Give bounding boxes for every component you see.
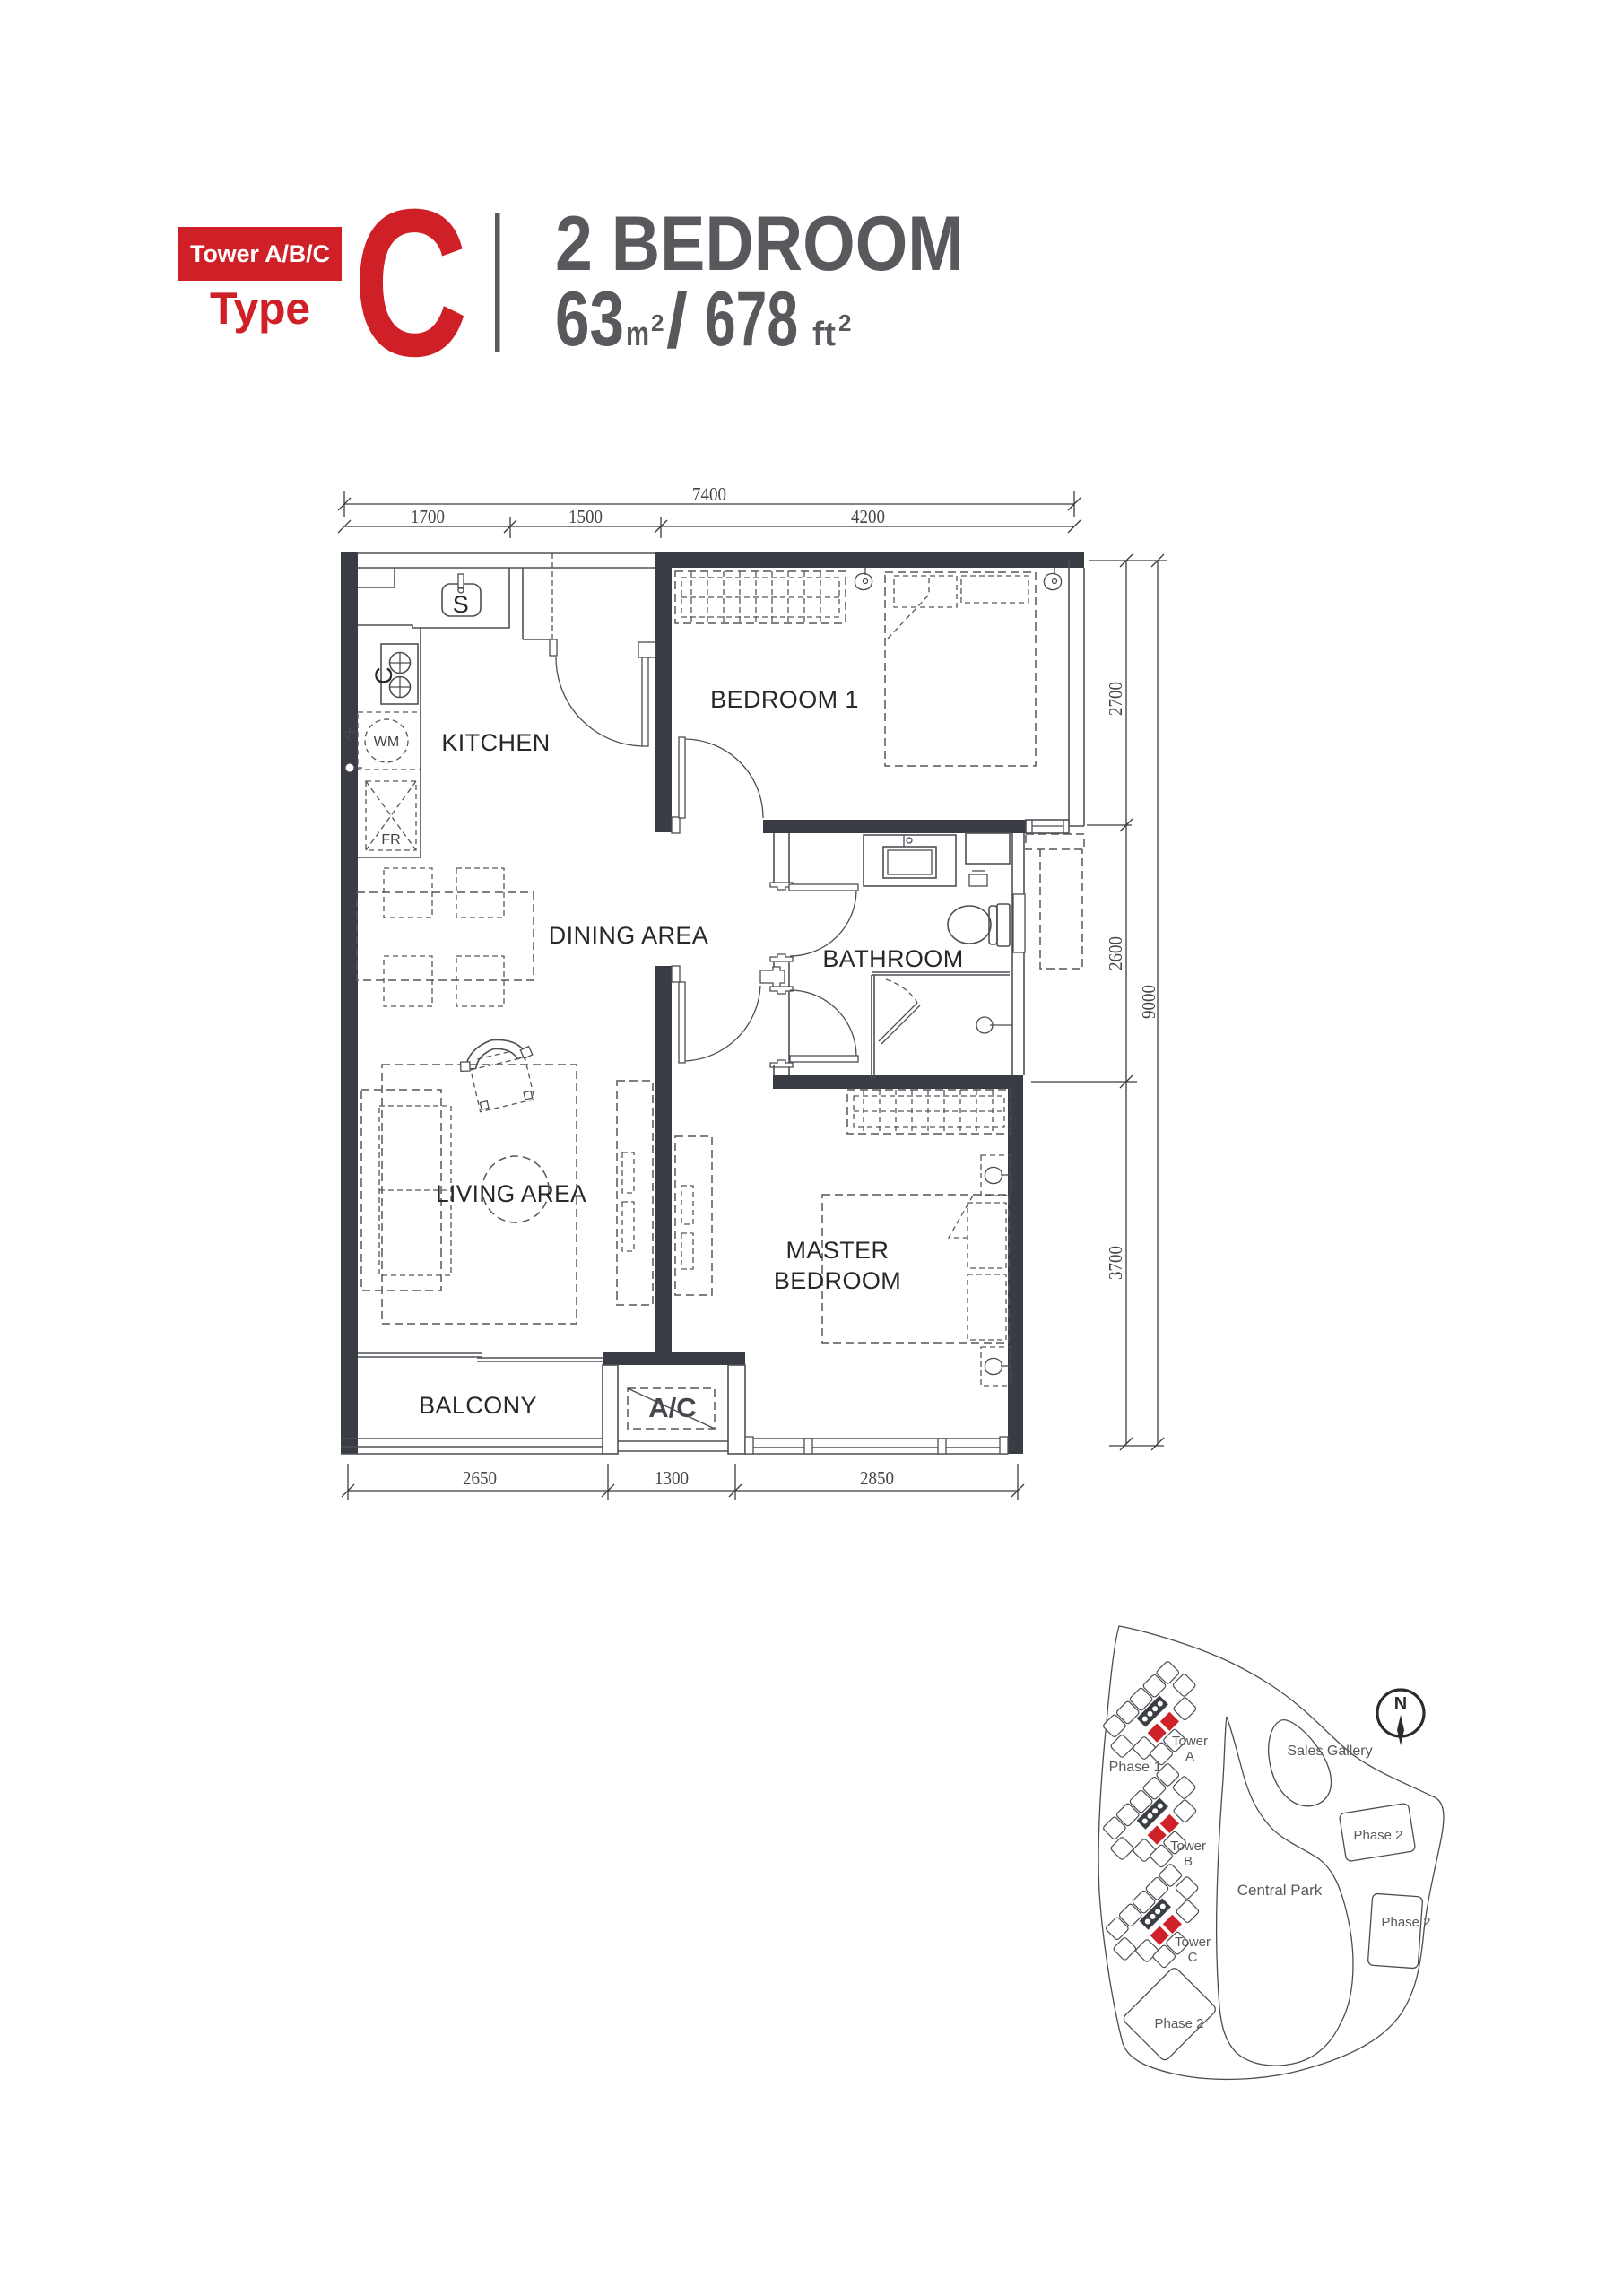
- svg-text:2: 2: [651, 309, 664, 336]
- svg-text:S: S: [453, 591, 469, 618]
- svg-text:BATHROOM: BATHROOM: [822, 945, 963, 972]
- svg-text:FR: FR: [381, 832, 400, 848]
- svg-text:DINING AREA: DINING AREA: [549, 922, 708, 949]
- svg-text:2 BEDROOM: 2 BEDROOM: [555, 201, 964, 287]
- svg-text:Type: Type: [210, 283, 310, 334]
- svg-text:1700: 1700: [411, 506, 445, 527]
- svg-text:m: m: [626, 316, 649, 353]
- svg-text:KITCHEN: KITCHEN: [441, 729, 550, 756]
- svg-text:Phase 2: Phase 2: [1154, 2016, 1203, 2031]
- svg-text:BALCONY: BALCONY: [419, 1392, 537, 1419]
- svg-text:C: C: [1188, 1950, 1198, 1965]
- svg-text:LIVING AREA: LIVING AREA: [436, 1180, 586, 1207]
- svg-text:N: N: [1394, 1694, 1407, 1714]
- svg-text:2700: 2700: [1105, 682, 1126, 716]
- svg-text:9000: 9000: [1138, 985, 1159, 1019]
- svg-text:BEDROOM: BEDROOM: [774, 1267, 901, 1294]
- svg-text:Sales Gallery: Sales Gallery: [1287, 1744, 1372, 1759]
- svg-text:ft: ft: [812, 316, 836, 353]
- svg-text:Central Park: Central Park: [1237, 1882, 1323, 1899]
- svg-text:B: B: [1184, 1854, 1193, 1869]
- svg-text:3700: 3700: [1105, 1246, 1126, 1280]
- svg-text:Tower A/B/C: Tower A/B/C: [190, 240, 330, 267]
- svg-text:2850: 2850: [860, 1467, 894, 1489]
- svg-text:Tower: Tower: [1175, 1935, 1211, 1950]
- svg-text:Tower: Tower: [1170, 1839, 1206, 1854]
- svg-text:2650: 2650: [463, 1467, 497, 1489]
- svg-text:7400: 7400: [692, 483, 726, 505]
- svg-text:63: 63: [555, 276, 624, 362]
- svg-text:Phase 2: Phase 2: [1353, 1828, 1402, 1843]
- svg-text:C: C: [370, 666, 397, 684]
- svg-text:2600: 2600: [1105, 936, 1126, 970]
- svg-text:A: A: [1185, 1749, 1194, 1764]
- svg-text:/: /: [666, 278, 688, 364]
- svg-text:Tower: Tower: [1172, 1734, 1208, 1749]
- svg-text:Phase 1: Phase 1: [1109, 1760, 1162, 1775]
- svg-text:1300: 1300: [655, 1467, 689, 1489]
- svg-text:2: 2: [838, 309, 851, 336]
- svg-text:A/C: A/C: [648, 1392, 696, 1423]
- svg-text:4200: 4200: [851, 506, 885, 527]
- svg-text:1500: 1500: [568, 506, 603, 527]
- svg-text:BEDROOM 1: BEDROOM 1: [710, 686, 859, 713]
- svg-text:678: 678: [705, 276, 798, 362]
- svg-text:C: C: [353, 165, 468, 400]
- svg-text:MASTER: MASTER: [786, 1237, 890, 1264]
- svg-text:WM: WM: [374, 735, 399, 750]
- svg-text:Phase 2: Phase 2: [1381, 1915, 1430, 1930]
